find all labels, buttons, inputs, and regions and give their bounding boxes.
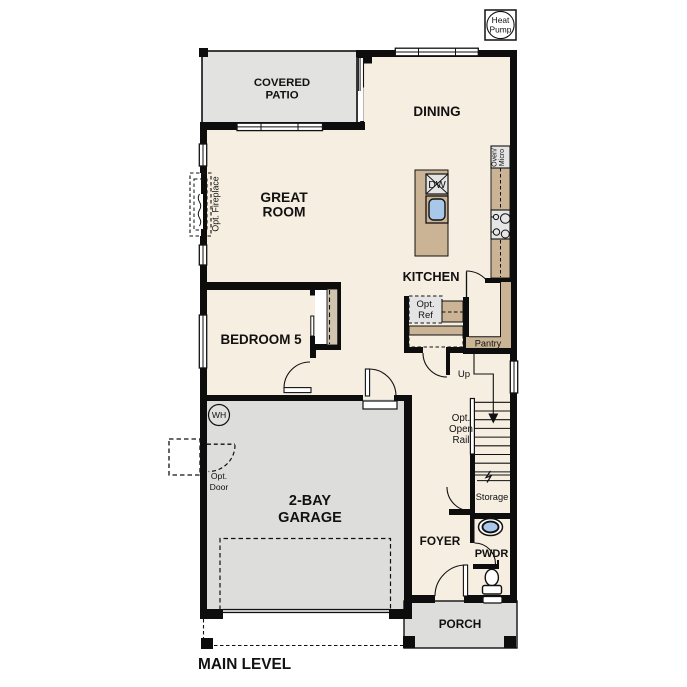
svg-text:BEDROOM 5: BEDROOM 5 — [220, 332, 302, 347]
svg-text:GARAGE: GARAGE — [278, 510, 342, 526]
svg-text:PWDR: PWDR — [475, 548, 509, 560]
svg-text:Opt.: Opt. — [417, 299, 435, 310]
svg-text:KITCHEN: KITCHEN — [403, 269, 460, 284]
svg-text:DINING: DINING — [413, 104, 460, 119]
svg-text:GREAT: GREAT — [260, 190, 308, 205]
svg-text:FOYER: FOYER — [420, 534, 461, 548]
svg-text:Pump: Pump — [490, 25, 512, 35]
svg-text:Ref: Ref — [418, 310, 433, 321]
svg-text:Opt.: Opt. — [211, 471, 227, 481]
svg-text:MAIN LEVEL: MAIN LEVEL — [198, 656, 291, 673]
svg-text:ROOM: ROOM — [263, 205, 306, 220]
svg-text:DW: DW — [428, 179, 446, 191]
svg-text:Up: Up — [458, 369, 470, 380]
svg-text:Open: Open — [449, 424, 473, 435]
svg-text:Opt.: Opt. — [452, 413, 471, 424]
svg-text:Opt. Fireplace: Opt. Fireplace — [211, 176, 221, 231]
svg-text:WH: WH — [212, 410, 226, 420]
svg-text:Rail: Rail — [453, 435, 470, 446]
svg-text:PORCH: PORCH — [439, 617, 482, 631]
svg-text:Heat: Heat — [492, 15, 510, 25]
svg-text:2-BAY: 2-BAY — [289, 493, 332, 509]
svg-text:Storage: Storage — [476, 492, 509, 502]
svg-text:COVERED: COVERED — [254, 77, 310, 89]
svg-text:Pantry: Pantry — [475, 339, 502, 349]
svg-text:Oven/Micro: Oven/Micro — [492, 148, 507, 167]
svg-text:Door: Door — [210, 482, 229, 492]
svg-text:PATIO: PATIO — [265, 90, 298, 102]
